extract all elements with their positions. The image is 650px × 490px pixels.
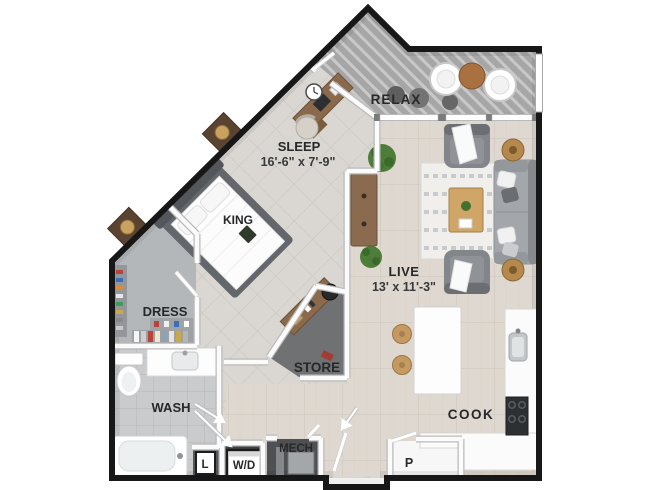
- label-king: KING: [223, 213, 253, 227]
- faucet-icon: [183, 351, 188, 356]
- label-mech: MECH: [279, 443, 313, 455]
- label-linen: L: [201, 459, 208, 471]
- mech-unit: [288, 452, 314, 474]
- label-pantry: P: [405, 456, 413, 470]
- table-plant-icon: [461, 201, 471, 211]
- media-console: [351, 174, 377, 246]
- toilet-tank: [115, 353, 143, 365]
- patio-table: [459, 63, 485, 89]
- window-icon: [380, 115, 438, 121]
- label-live: LIVE: [389, 264, 420, 279]
- kitchen-island: [414, 307, 461, 394]
- label-laundry: W/D: [233, 460, 255, 472]
- floor-plan: RELAX SLEEP 16'-6" x 7'-9" KING LIVE 13'…: [0, 0, 650, 490]
- book: [459, 219, 472, 228]
- faucet-icon: [516, 329, 521, 334]
- window-icon: [536, 54, 543, 112]
- bathtub-basin: [119, 441, 175, 471]
- label-live-dims: 13' x 11'-3": [372, 280, 436, 294]
- label-dress: DRESS: [143, 304, 188, 319]
- label-sleep-dims: 16'-6" x 7'-9": [261, 155, 336, 169]
- window-icon: [446, 115, 486, 121]
- pillow: [497, 227, 516, 245]
- label-relax: RELAX: [371, 92, 422, 107]
- label-sleep: SLEEP: [278, 139, 321, 154]
- tub-faucet-icon: [177, 453, 183, 459]
- planter-icon: [442, 94, 458, 110]
- pillow: [497, 170, 517, 188]
- window-wall: [374, 114, 538, 121]
- label-cook: COOK: [448, 407, 495, 422]
- toilet-bowl: [122, 372, 137, 392]
- label-wash: WASH: [152, 400, 191, 415]
- window-icon: [492, 115, 532, 121]
- label-store: STORE: [294, 360, 340, 375]
